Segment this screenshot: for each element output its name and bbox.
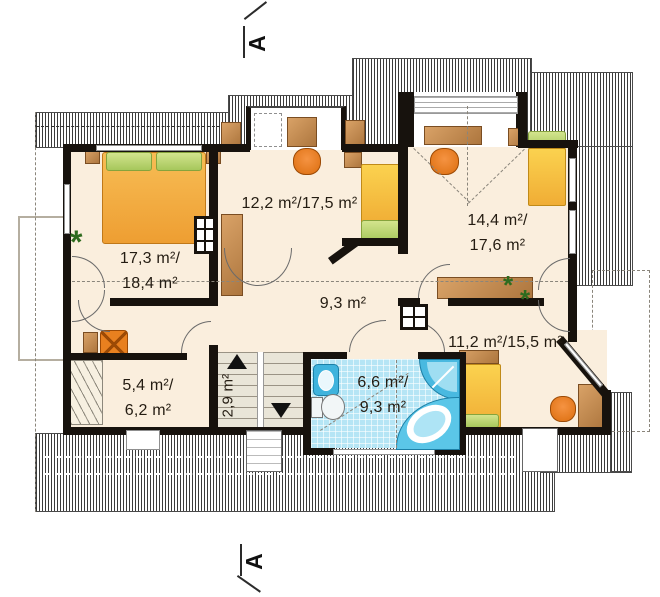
dormer-window-band — [414, 96, 518, 114]
office-chair — [550, 396, 576, 422]
section-marker-letter-bottom: A — [241, 553, 268, 570]
window-right-wall-2 — [569, 210, 576, 254]
wall-wardrobe-room-top — [63, 353, 187, 360]
cabinet — [221, 122, 241, 146]
cabinet — [345, 120, 365, 146]
single-bed — [528, 148, 566, 206]
area-line-1: 5,4 m²/ — [103, 373, 193, 398]
chimney-flue-2 — [400, 304, 428, 330]
wall-bathroom-top-a — [303, 352, 347, 359]
room-label-stairs: 2,9 m² — [216, 366, 241, 426]
wall-bedroom-bottom — [110, 298, 216, 306]
desk — [287, 117, 317, 147]
roof-right-band — [575, 146, 633, 286]
window-right-wall-1 — [569, 158, 576, 202]
wall-room-divider-center — [398, 92, 408, 254]
area-line-2: 9,3 m² — [338, 395, 428, 420]
slope-line — [467, 106, 468, 206]
window-dormer-table — [522, 428, 558, 472]
pillow — [106, 152, 152, 171]
floor-plan: * * * 17,3 m²/ 18,4 m² 12,2 m²/17,5 m² — [0, 0, 660, 597]
single-bed — [361, 164, 400, 226]
roof-overhang-dash-top — [36, 126, 230, 127]
wall-bathroom-left — [303, 352, 311, 455]
side-table — [83, 332, 98, 353]
dormer-room-top-middle — [246, 106, 346, 150]
wardrobe-built-in — [70, 360, 103, 425]
stair-stringer — [257, 352, 264, 427]
window-dormer-bottom-left — [126, 430, 160, 450]
area-line-1: 14,4 m²/ — [445, 208, 550, 233]
sink — [313, 364, 339, 396]
wall-top-mid-a — [230, 144, 250, 152]
room-label-bedroom-left: 17,3 m²/ 18,4 m² — [90, 246, 210, 296]
plant-icon: * — [70, 234, 82, 252]
room-label-right: 14,4 m²/ 17,6 m² — [445, 208, 550, 258]
wall-top-mid-b — [342, 144, 404, 152]
section-marker-letter-top: A — [244, 35, 271, 52]
area-line-1: 17,3 m²/ — [90, 246, 210, 271]
nightstand — [344, 152, 362, 168]
dormer-room-right — [408, 92, 522, 147]
room-label-bottom-right: 11,2 m²/15,5 m² — [438, 330, 573, 355]
pillow — [461, 414, 499, 428]
area-line-2: 6,2 m² — [103, 398, 193, 423]
room-label-top-middle: 12,2 m²/17,5 m² — [237, 191, 362, 216]
room-label-hallway: 9,3 m² — [303, 291, 383, 316]
office-chair — [293, 148, 321, 175]
room-label-wardrobe-room: 5,4 m²/ 6,2 m² — [103, 373, 193, 423]
window-dormer-stairs — [246, 430, 282, 472]
roof-eave-top-left — [35, 112, 231, 148]
desk — [424, 126, 482, 145]
stair-arrow-down — [271, 403, 291, 418]
roof-fold-dash-2 — [45, 473, 515, 475]
plant-icon: * — [520, 292, 530, 306]
roof-overhang-dash-left — [35, 112, 36, 512]
dormer-window — [254, 113, 282, 147]
room-label-bathroom: 6,6 m²/ 9,3 m² — [338, 370, 428, 420]
section-marker-diag-bottom — [237, 575, 261, 593]
office-chair — [430, 148, 459, 175]
area-line-2: 18,4 m² — [90, 271, 210, 296]
wall-bathroom-bottom-a — [303, 448, 335, 455]
nightstand — [85, 150, 100, 164]
section-marker-diag-top — [244, 1, 267, 20]
window-bedroom-top — [96, 145, 202, 151]
pillow — [156, 152, 202, 171]
plant-icon: * — [503, 278, 513, 292]
area-line-1: 6,6 m²/ — [338, 370, 428, 395]
area-line-2: 17,6 m² — [445, 233, 550, 258]
